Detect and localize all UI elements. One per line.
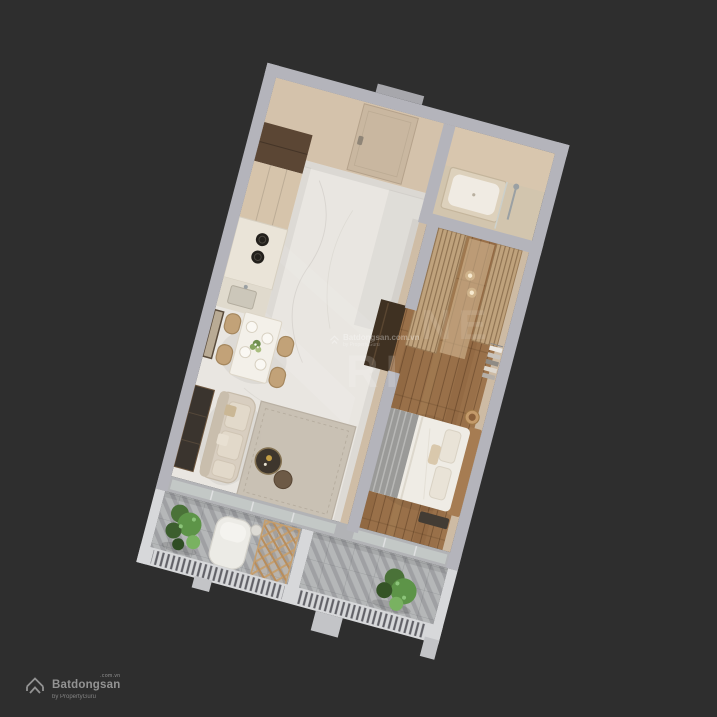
batdongsan-house-icon — [24, 674, 46, 696]
batdongsan-logo: .com.vn Batdongsan by PropertyGuru — [24, 674, 120, 700]
logo-brand: Batdongsan — [52, 680, 120, 692]
logo-byline: by PropertyGuru — [52, 694, 120, 700]
render-canvas: NE RI Batdongsan.com.vn by PropertyGuru … — [0, 0, 717, 717]
floorplan-render — [0, 0, 717, 717]
